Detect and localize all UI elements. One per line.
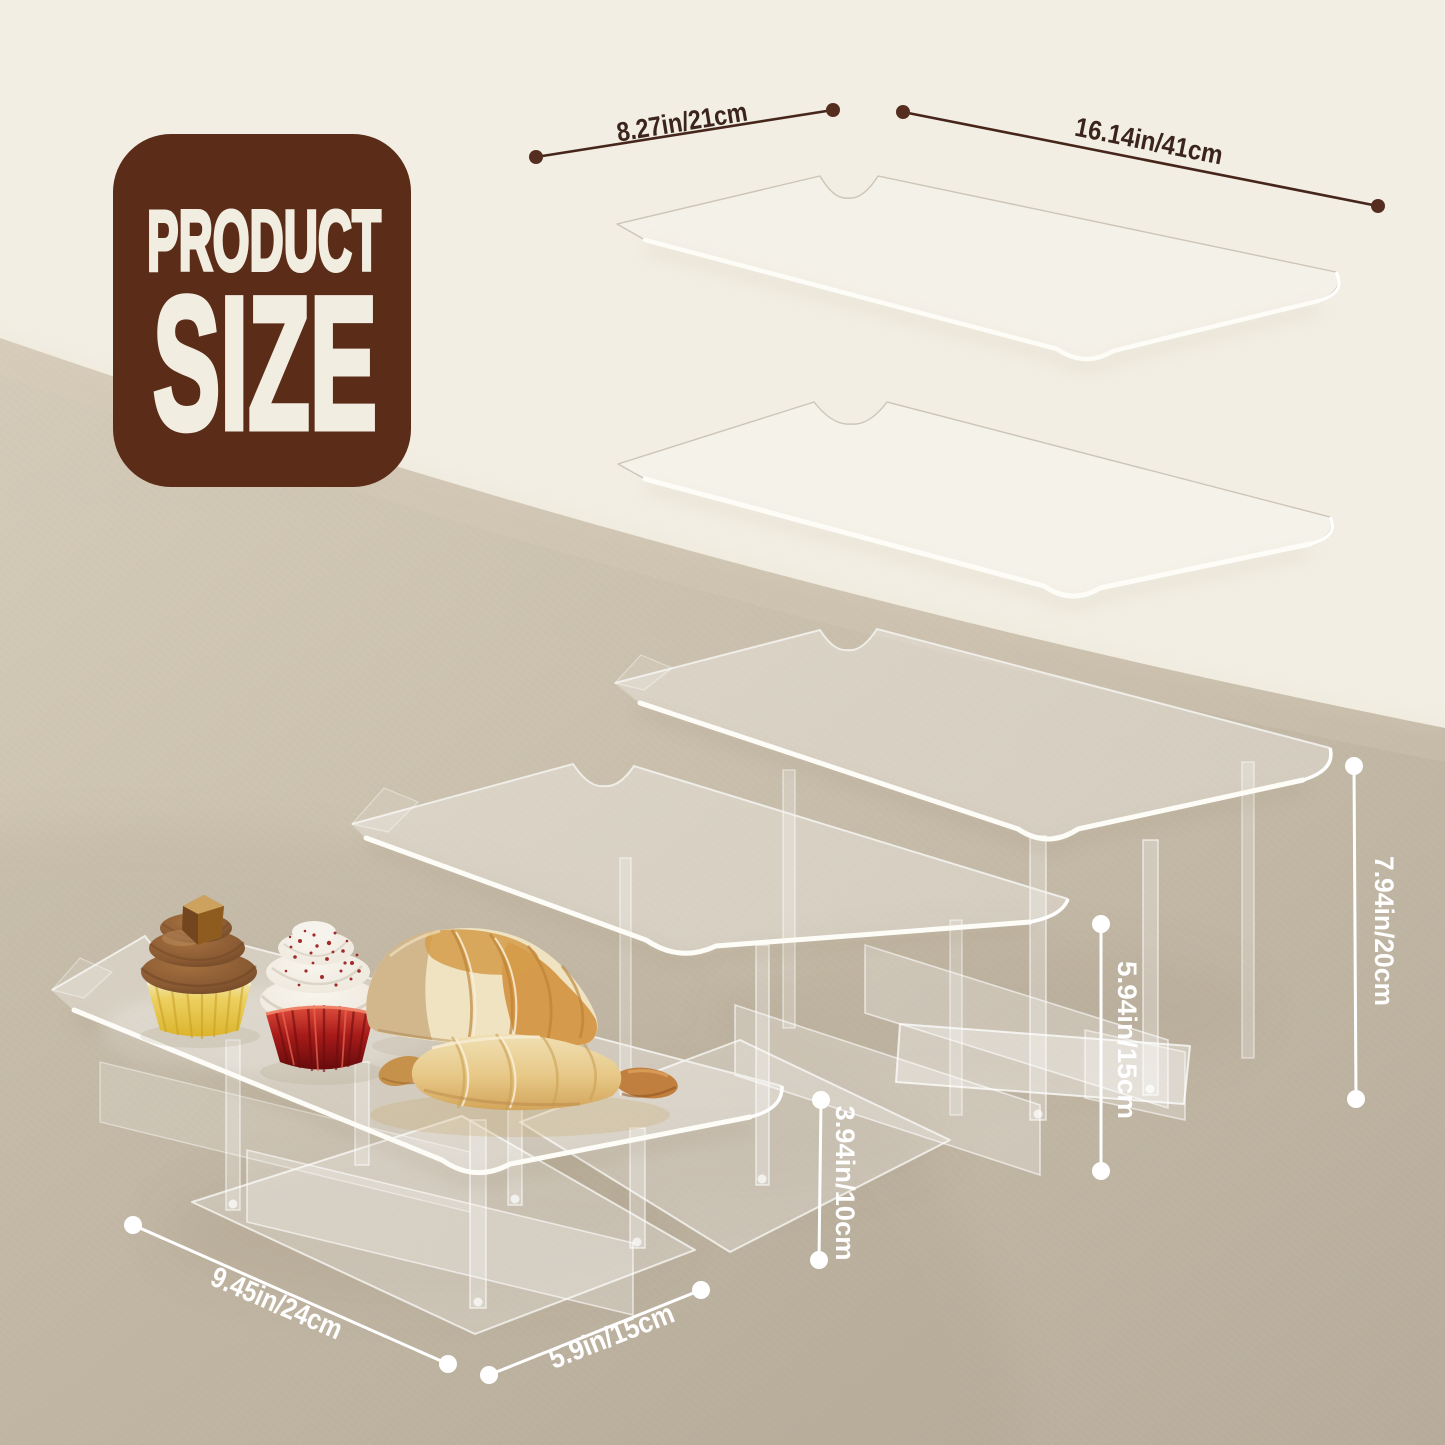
svg-text:7.94in/20cm: 7.94in/20cm — [1369, 856, 1399, 1006]
svg-text:SIZE: SIZE — [153, 258, 377, 468]
svg-text:3.94in/10cm: 3.94in/10cm — [830, 1106, 860, 1261]
svg-text:5.94in/15cm: 5.94in/15cm — [1112, 961, 1142, 1119]
